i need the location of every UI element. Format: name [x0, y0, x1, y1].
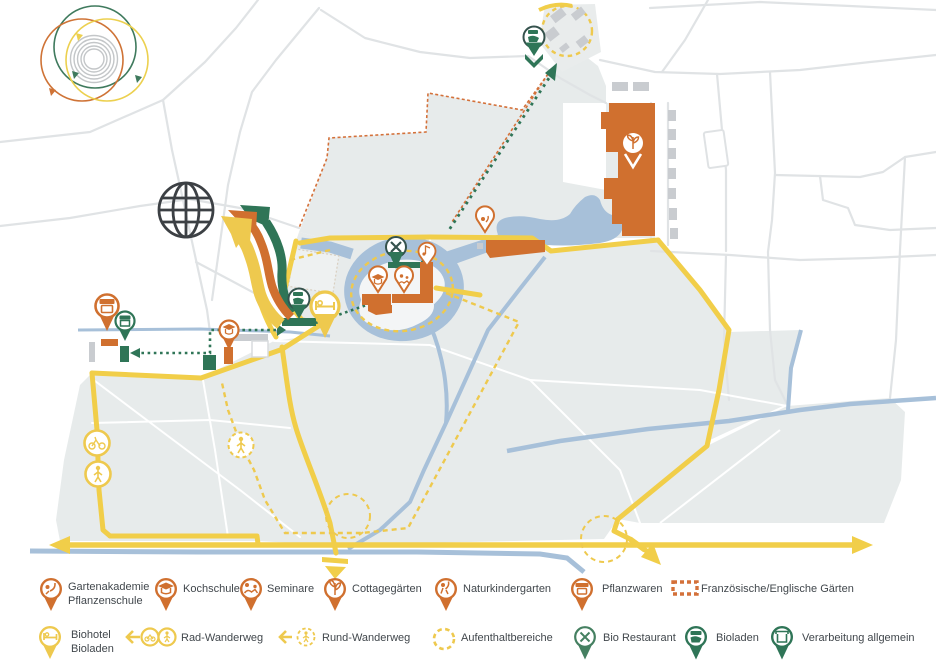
svg-text:Kochschule: Kochschule — [183, 583, 240, 595]
svg-text:Cottagegärten: Cottagegärten — [352, 583, 422, 595]
svg-text:Rund-Wanderweg: Rund-Wanderweg — [322, 632, 410, 644]
svg-text:Pflanzwaren: Pflanzwaren — [602, 583, 663, 595]
svg-text:Gartenakademie: Gartenakademie — [68, 581, 149, 593]
svg-text:Aufenthaltbereiche: Aufenthaltbereiche — [461, 632, 553, 644]
svg-text:Pflanzenschule: Pflanzenschule — [68, 595, 143, 607]
svg-text:Biohotel: Biohotel — [71, 629, 111, 641]
svg-text:Naturkindergarten: Naturkindergarten — [463, 583, 551, 595]
svg-text:Seminare: Seminare — [267, 583, 314, 595]
svg-text:Rad-Wanderweg: Rad-Wanderweg — [181, 632, 263, 644]
svg-text:Verarbeitung allgemein: Verarbeitung allgemein — [802, 632, 915, 644]
svg-text:Französische/Englische Gärten: Französische/Englische Gärten — [701, 583, 854, 595]
svg-text:Bio Restaurant: Bio Restaurant — [603, 632, 676, 644]
svg-text:Bioladen: Bioladen — [71, 643, 114, 655]
svg-text:Bioladen: Bioladen — [716, 632, 759, 644]
